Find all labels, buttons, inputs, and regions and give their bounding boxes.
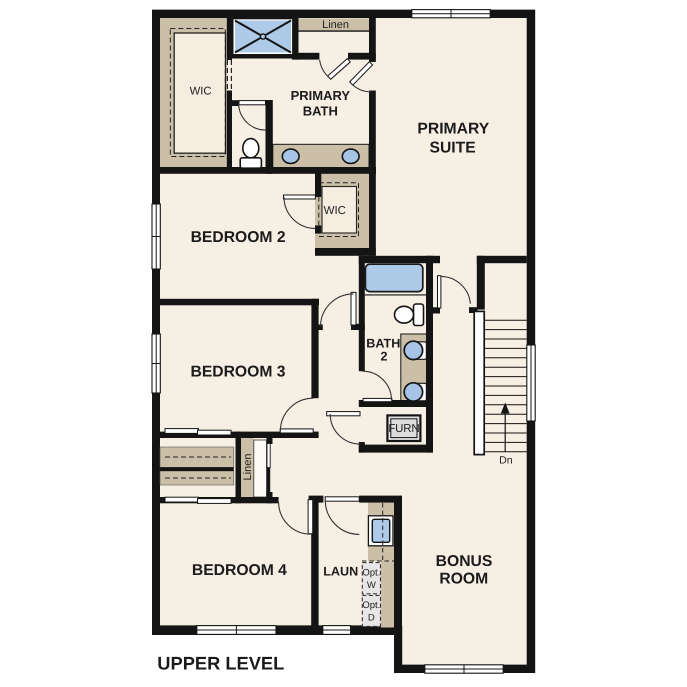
svg-text:D: D <box>368 613 375 624</box>
svg-text:Opt.: Opt. <box>362 568 380 579</box>
svg-text:PRIMARY: PRIMARY <box>291 88 351 103</box>
svg-text:SUITE: SUITE <box>429 140 475 157</box>
svg-text:BATH: BATH <box>303 103 338 118</box>
svg-text:BEDROOM 3: BEDROOM 3 <box>190 363 285 380</box>
svg-text:BONUS: BONUS <box>436 553 493 570</box>
svg-text:BATH: BATH <box>366 336 400 350</box>
svg-text:FURN: FURN <box>388 423 419 435</box>
svg-text:BEDROOM 2: BEDROOM 2 <box>191 229 286 246</box>
svg-text:Linen: Linen <box>242 454 254 481</box>
svg-text:PRIMARY: PRIMARY <box>417 120 489 137</box>
svg-text:ROOM: ROOM <box>439 570 488 587</box>
svg-text:UPPER LEVEL: UPPER LEVEL <box>157 653 284 674</box>
svg-text:BEDROOM 4: BEDROOM 4 <box>192 562 287 579</box>
svg-text:2: 2 <box>380 350 387 364</box>
svg-text:LAUN: LAUN <box>323 564 358 578</box>
svg-text:WIC: WIC <box>324 205 346 217</box>
svg-text:W: W <box>367 580 376 591</box>
svg-text:Dn: Dn <box>499 455 513 467</box>
svg-text:WIC: WIC <box>190 86 212 98</box>
svg-text:Linen: Linen <box>322 19 349 31</box>
svg-text:Opt.: Opt. <box>362 600 380 611</box>
